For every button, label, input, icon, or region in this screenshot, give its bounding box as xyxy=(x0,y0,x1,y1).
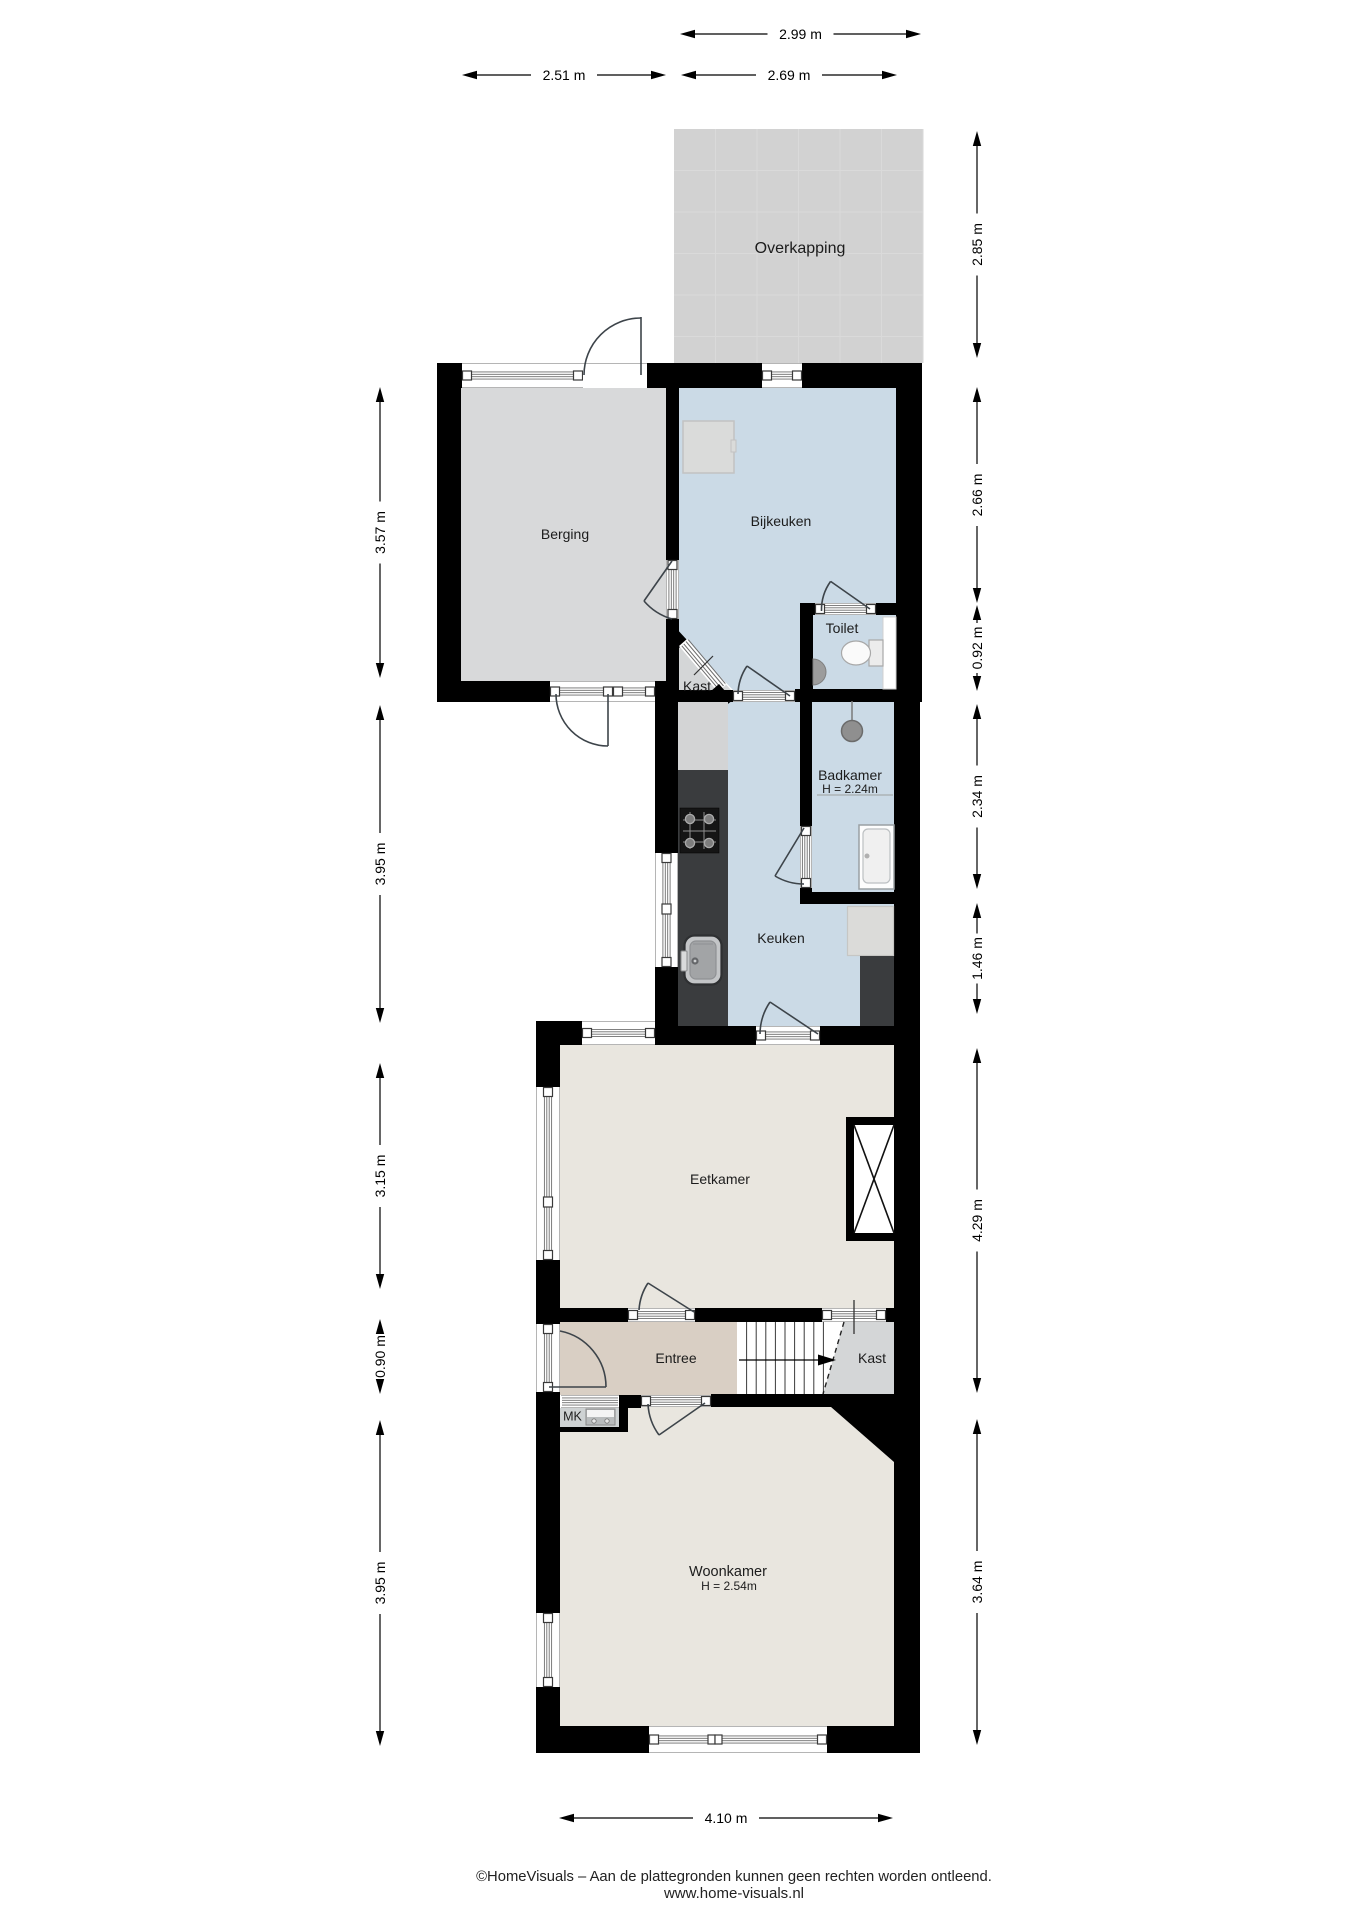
svg-text:3.57 m: 3.57 m xyxy=(372,511,388,554)
svg-text:Kast: Kast xyxy=(858,1350,886,1366)
svg-text:H = 2.54m: H = 2.54m xyxy=(701,1579,757,1593)
svg-text:2.34 m: 2.34 m xyxy=(969,775,985,818)
svg-text:2.69 m: 2.69 m xyxy=(768,67,811,83)
svg-text:Woonkamer: Woonkamer xyxy=(689,1564,767,1580)
svg-text:3.95 m: 3.95 m xyxy=(372,843,388,886)
svg-text:0.92 m: 0.92 m xyxy=(969,627,985,670)
svg-text:3.95 m: 3.95 m xyxy=(372,1562,388,1605)
svg-text:4.29 m: 4.29 m xyxy=(969,1199,985,1242)
svg-text:2.51 m: 2.51 m xyxy=(543,67,586,83)
svg-text:Overkapping: Overkapping xyxy=(755,240,846,257)
svg-text:Berging: Berging xyxy=(541,526,589,542)
svg-text:Badkamer: Badkamer xyxy=(818,767,882,783)
svg-text:3.64 m: 3.64 m xyxy=(969,1561,985,1604)
svg-text:2.66 m: 2.66 m xyxy=(969,474,985,517)
svg-text:4.10 m: 4.10 m xyxy=(705,1810,748,1826)
svg-text:H = 2.24m: H = 2.24m xyxy=(822,782,878,796)
svg-text:Kast: Kast xyxy=(683,678,711,694)
svg-text:Bijkeuken: Bijkeuken xyxy=(751,513,812,529)
svg-text:©HomeVisuals – Aan de plattegr: ©HomeVisuals – Aan de plattegronden kunn… xyxy=(476,1869,992,1885)
svg-text:0.90 m: 0.90 m xyxy=(372,1335,388,1378)
svg-text:2.99 m: 2.99 m xyxy=(779,26,822,42)
svg-text:2.85 m: 2.85 m xyxy=(969,223,985,266)
svg-text:Toilet: Toilet xyxy=(826,620,859,636)
svg-text:Keuken: Keuken xyxy=(757,930,804,946)
svg-text:www.home-visuals.nl: www.home-visuals.nl xyxy=(663,1885,804,1902)
svg-text:1.46 m: 1.46 m xyxy=(969,937,985,980)
svg-text:Eetkamer: Eetkamer xyxy=(690,1171,750,1187)
svg-text:MK: MK xyxy=(563,1409,582,1423)
svg-text:Entree: Entree xyxy=(655,1350,696,1366)
svg-text:3.15 m: 3.15 m xyxy=(372,1155,388,1198)
